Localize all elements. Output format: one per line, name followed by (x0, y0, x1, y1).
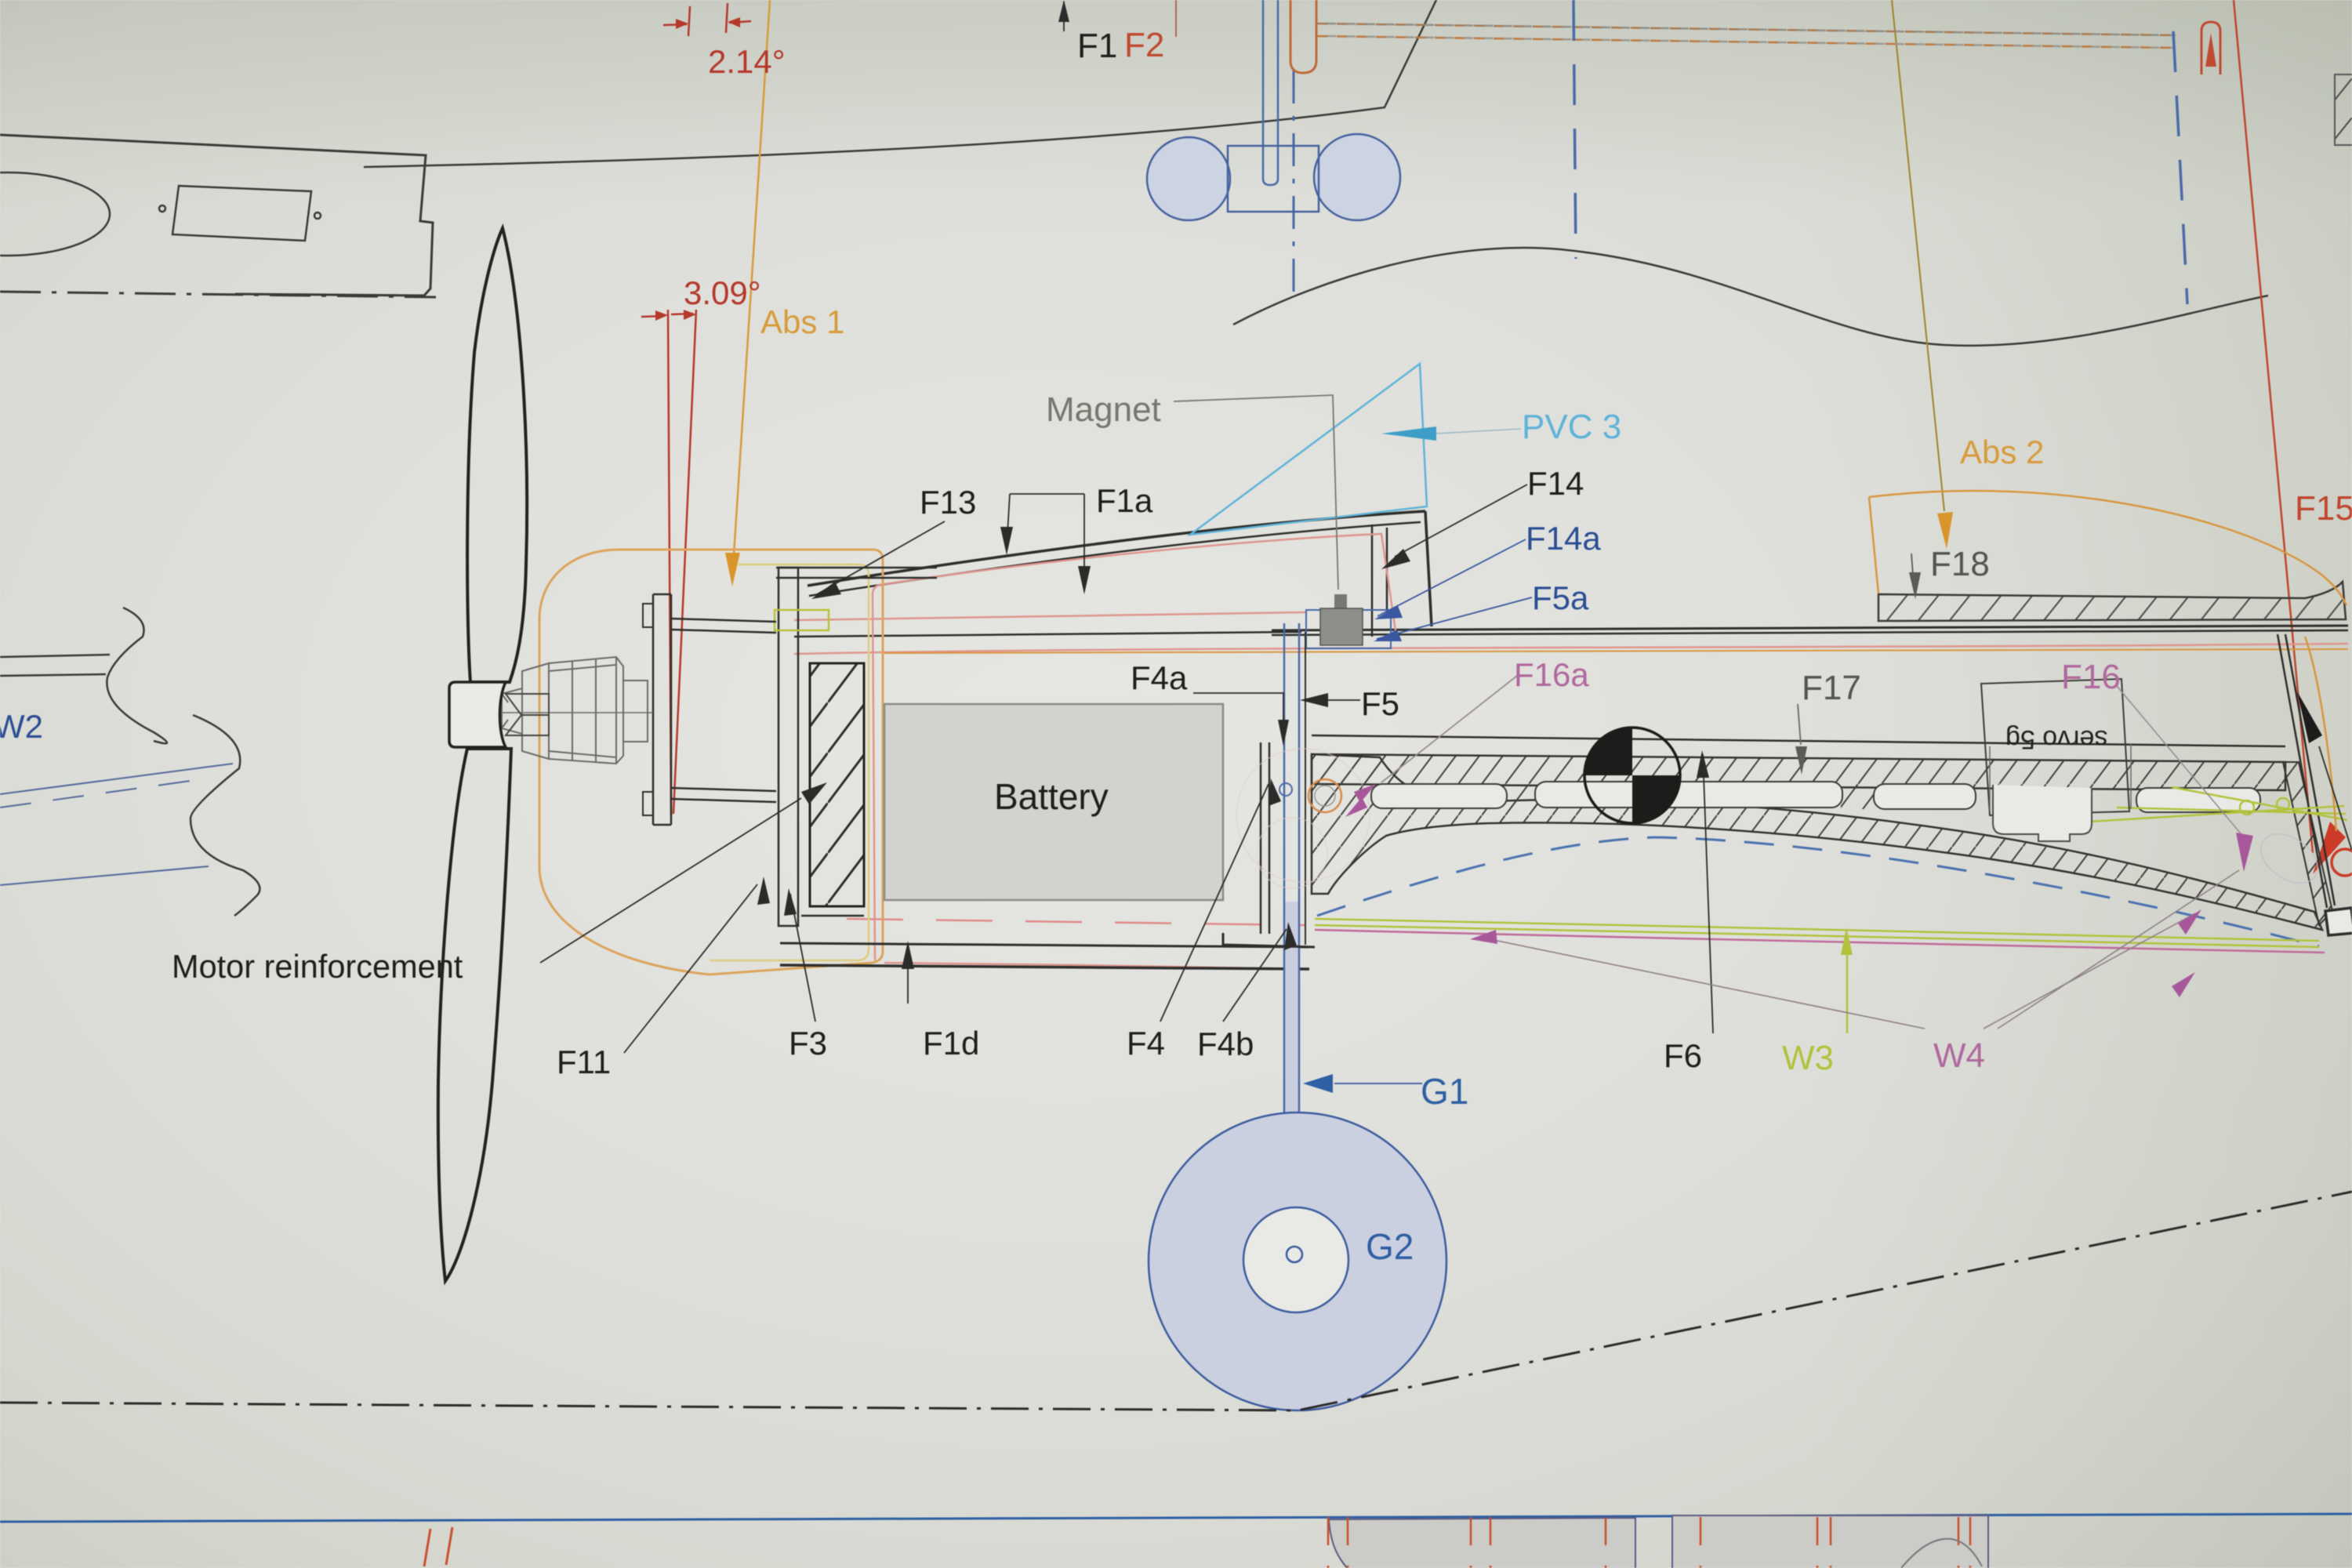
svg-text:W3: W3 (1782, 1039, 1834, 1077)
svg-text:W2: W2 (0, 708, 43, 745)
svg-text:F17: F17 (1802, 669, 1861, 707)
svg-text:F4b: F4b (1197, 1025, 1254, 1062)
svg-text:G2: G2 (1366, 1226, 1414, 1267)
svg-text:Abs 1: Abs 1 (760, 303, 844, 340)
svg-text:F4: F4 (1127, 1025, 1165, 1062)
svg-text:Abs 2: Abs 2 (1960, 434, 2044, 470)
svg-text:F14: F14 (1527, 465, 1584, 502)
svg-text:2.14°: 2.14° (708, 43, 786, 80)
svg-text:PVC 3: PVC 3 (1522, 408, 1621, 446)
svg-text:3.09°: 3.09° (684, 274, 761, 311)
svg-text:G1: G1 (1421, 1071, 1468, 1112)
svg-text:F3: F3 (789, 1025, 827, 1062)
svg-text:F1a: F1a (1096, 482, 1153, 519)
svg-text:F14a: F14a (1526, 520, 1601, 557)
svg-text:F2: F2 (1124, 26, 1164, 64)
svg-text:Motor reinforcement: Motor reinforcement (172, 948, 463, 985)
svg-text:F18: F18 (1930, 545, 1990, 583)
svg-text:servo 5g: servo 5g (2005, 724, 2107, 754)
svg-text:F13: F13 (920, 484, 976, 521)
svg-text:W4: W4 (1933, 1036, 1985, 1075)
svg-text:F4a: F4a (1131, 659, 1188, 696)
svg-text:F5a: F5a (1532, 579, 1589, 616)
svg-text:F16: F16 (2061, 658, 2121, 696)
svg-text:F11: F11 (557, 1044, 611, 1080)
svg-text:F15: F15 (2295, 489, 2352, 528)
svg-text:Battery: Battery (994, 776, 1109, 817)
svg-text:F1: F1 (1077, 27, 1117, 65)
svg-text:Magnet: Magnet (1046, 390, 1161, 429)
svg-text:F1d: F1d (923, 1025, 979, 1062)
svg-text:F16a: F16a (1514, 656, 1589, 693)
svg-text:F6: F6 (1664, 1037, 1702, 1074)
svg-text:F5: F5 (1361, 685, 1399, 722)
